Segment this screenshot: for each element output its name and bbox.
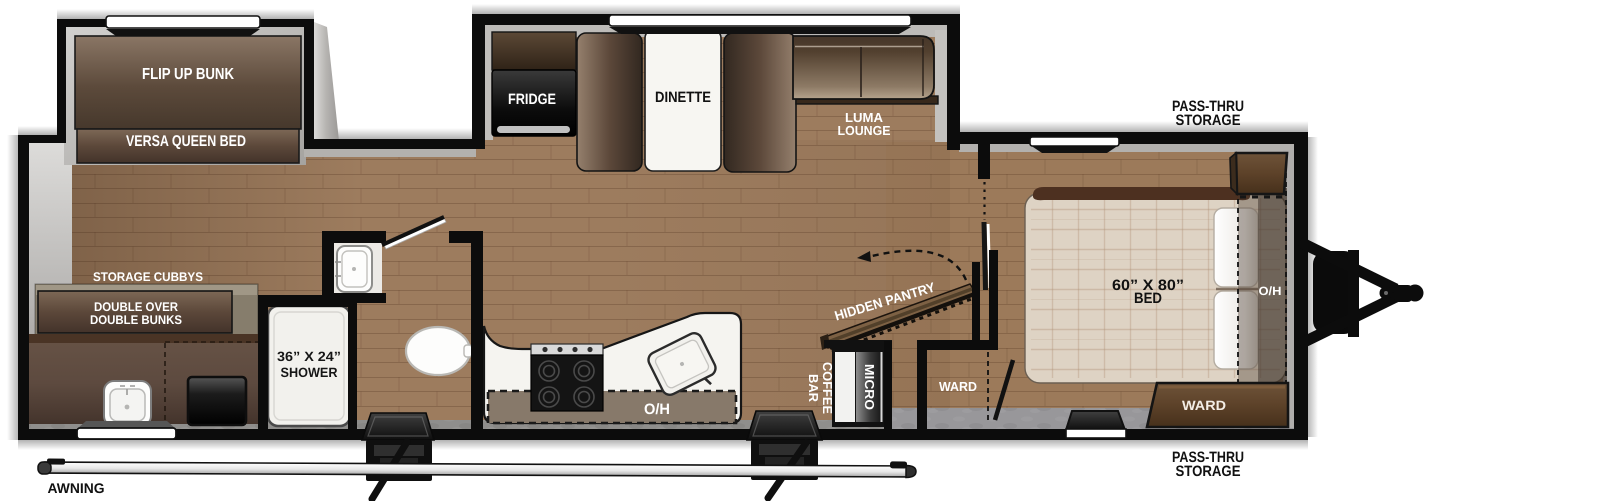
svg-text:SHOWER: SHOWER xyxy=(281,365,338,380)
svg-text:STORAGE: STORAGE xyxy=(1176,463,1241,480)
svg-text:AWNING: AWNING xyxy=(48,480,105,496)
svg-text:MICRO: MICRO xyxy=(862,364,877,410)
svg-text:STORAGE CUBBYS: STORAGE CUBBYS xyxy=(93,270,203,284)
svg-text:O/H: O/H xyxy=(644,401,670,418)
svg-text:LOUNGE: LOUNGE xyxy=(838,123,891,138)
svg-text:FRIDGE: FRIDGE xyxy=(508,91,556,108)
svg-text:VERSA QUEEN BED: VERSA QUEEN BED xyxy=(126,133,246,150)
svg-text:BAR: BAR xyxy=(806,374,821,403)
svg-text:BED: BED xyxy=(1134,290,1162,307)
svg-text:DOUBLE OVER: DOUBLE OVER xyxy=(94,300,178,314)
svg-text:DOUBLE BUNKS: DOUBLE BUNKS xyxy=(90,313,182,327)
svg-text:STORAGE: STORAGE xyxy=(1176,112,1241,129)
svg-text:O/H: O/H xyxy=(1259,284,1282,298)
svg-text:FLIP UP BUNK: FLIP UP BUNK xyxy=(142,66,234,83)
svg-text:36” X 24”: 36” X 24” xyxy=(277,349,341,364)
svg-text:WARD: WARD xyxy=(1182,398,1226,413)
svg-text:DINETTE: DINETTE xyxy=(655,89,711,106)
svg-text:WARD: WARD xyxy=(939,379,977,394)
